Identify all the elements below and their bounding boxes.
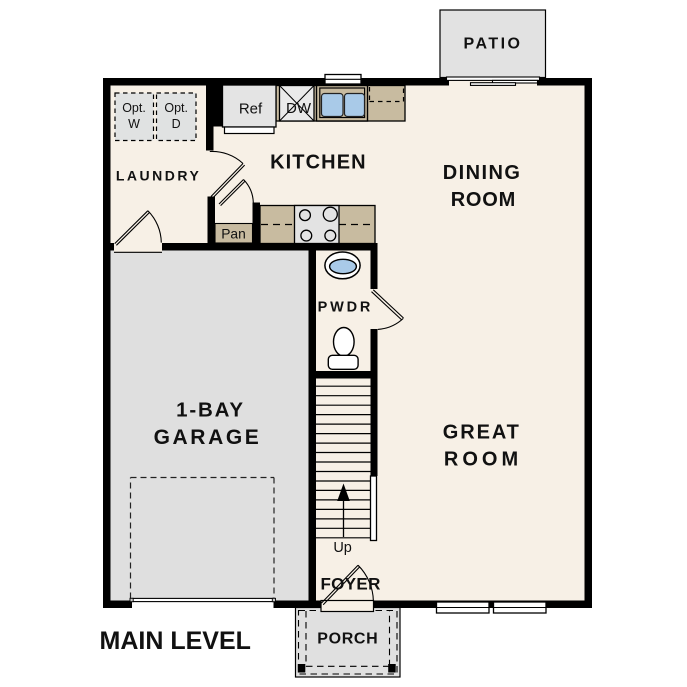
svg-text:LAUNDRY: LAUNDRY [116,168,201,184]
svg-text:ROOM: ROOM [444,449,522,471]
svg-text:Ref: Ref [239,101,263,118]
svg-text:MAIN LEVEL: MAIN LEVEL [100,627,251,655]
svg-text:Opt.: Opt. [164,101,188,115]
svg-text:Up: Up [333,540,352,556]
svg-text:PORCH: PORCH [317,631,378,648]
svg-text:PATIO: PATIO [463,35,522,52]
svg-text:KITCHEN: KITCHEN [270,152,367,174]
svg-text:FOYER: FOYER [320,575,380,594]
svg-text:DINING: DINING [443,162,522,184]
svg-text:ROOM: ROOM [451,189,516,211]
svg-text:1-BAY: 1-BAY [176,399,245,422]
svg-text:DW: DW [286,100,312,117]
svg-text:GREAT: GREAT [443,422,521,444]
svg-text:Pan: Pan [221,226,246,241]
svg-text:GARAGE: GARAGE [154,426,262,449]
svg-text:Opt.: Opt. [122,101,146,115]
svg-text:PWDR: PWDR [318,300,374,316]
svg-text:D: D [172,117,181,131]
svg-text:W: W [128,117,140,131]
